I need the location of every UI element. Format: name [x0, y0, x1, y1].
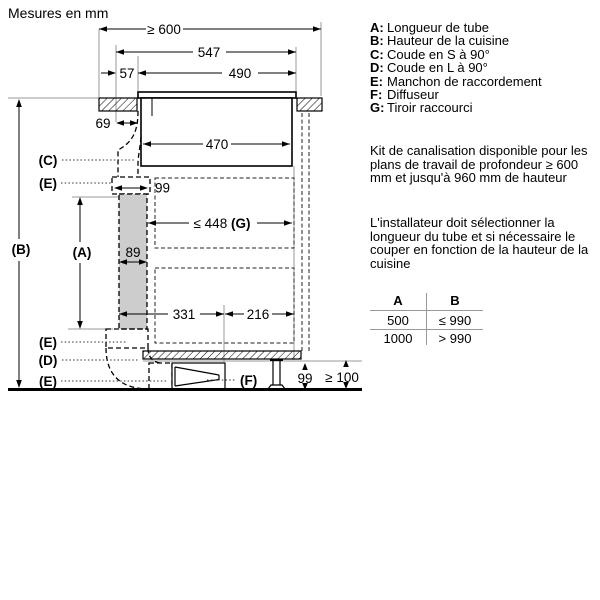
- label-kitchen-height: (B): [12, 242, 31, 257]
- plinth-foot: [268, 359, 285, 390]
- sleeve-bottom: [149, 363, 172, 389]
- legend-key: E:: [370, 75, 387, 88]
- legend-text: Hauteur de la cuisine: [387, 34, 509, 47]
- sleeve-mid: [106, 329, 148, 348]
- tube-length-table: A B 500 ≤ 990 1000 > 990: [370, 292, 483, 346]
- dim-worktop-depth: ≥ 600: [147, 22, 181, 37]
- dim-hob-overall: 547: [198, 45, 221, 60]
- legend-item-g: G:Tiroir raccourci: [370, 101, 600, 114]
- sleeve-top: [112, 177, 150, 194]
- label-sleeve-bottom: (E): [39, 374, 57, 389]
- legend-item-c: C:Coude en S à 90°: [370, 48, 600, 61]
- dim-plinth-min: ≥ 100: [325, 370, 359, 385]
- table-cell: 500: [370, 313, 426, 328]
- legend: A:Longueur de tube B:Hauteur de la cuisi…: [370, 21, 600, 115]
- legend-key: D:: [370, 61, 387, 74]
- label-sleeve-mid: (E): [39, 335, 57, 350]
- legend-key: F:: [370, 88, 387, 101]
- dim-plinth-height: 99: [297, 371, 312, 386]
- legend-text: Coude en L à 90°: [387, 61, 488, 74]
- drawer-outline: [155, 178, 294, 248]
- table-rule: [370, 310, 483, 311]
- drawer-ref: (G): [231, 216, 251, 231]
- note-installer: L'installateur doit sélectionner la long…: [370, 216, 600, 270]
- legend-text: Tiroir raccourci: [387, 101, 472, 114]
- worktop-section-left: [99, 98, 137, 111]
- legend-item-f: F:Diffuseur: [370, 88, 600, 101]
- legend-text: Diffuseur: [387, 88, 439, 101]
- table-header-b: B: [427, 293, 483, 308]
- dim-cutout: 490: [229, 66, 252, 81]
- hob-body: [141, 98, 292, 166]
- dim-span-right: 216: [247, 307, 270, 322]
- legend-item-d: D:Coude en L à 90°: [370, 61, 600, 74]
- dim-drawer-length: ≤ 448 (G): [194, 216, 251, 231]
- dim-rear-clearance: 69: [95, 116, 110, 131]
- label-s-bend: (C): [39, 153, 58, 168]
- dim-body-width: 470: [206, 137, 229, 152]
- cabinet-bottom-panel: [143, 351, 301, 359]
- legend-key: A:: [370, 21, 387, 34]
- diffuser: [172, 363, 225, 390]
- worktop-section-right: [297, 98, 322, 111]
- legend-key: B:: [370, 34, 387, 47]
- label-sleeve-top: (E): [39, 176, 57, 191]
- hob-top-plate: [138, 92, 296, 98]
- measurement-diagram-page: Mesures en mm: [0, 0, 600, 600]
- note-duct-kit: Kit de canalisation disponible pour les …: [370, 144, 600, 185]
- dimension-lines: [19, 29, 321, 380]
- legend-item-e: E:Manchon de raccordement: [370, 75, 600, 88]
- table-header-a: A: [370, 293, 426, 308]
- legend-key: G:: [370, 101, 387, 114]
- label-tube: (A): [73, 245, 92, 260]
- table-cell: ≤ 990: [427, 313, 483, 328]
- arrowheads: [16, 26, 349, 390]
- legend-text: Manchon de raccordement: [387, 75, 542, 88]
- dim-sleeve-width: 99: [155, 181, 170, 196]
- legend-item-a: A:Longueur de tube: [370, 21, 600, 34]
- drawer-length-value: ≤ 448: [194, 216, 228, 231]
- legend-text: Longueur de tube: [387, 21, 489, 34]
- legend-item-b: B:Hauteur de la cuisine: [370, 34, 600, 47]
- table-rule: [370, 329, 483, 330]
- s-bend-outer: [118, 111, 138, 177]
- table-cell: > 990: [427, 331, 483, 346]
- legend-key: C:: [370, 48, 387, 61]
- dim-front-gap: 57: [119, 66, 134, 81]
- label-diffuser: (F): [240, 373, 257, 388]
- table-cell: 1000: [370, 331, 426, 346]
- dim-span-left: 331: [173, 307, 196, 322]
- dim-tube-width: 89: [125, 245, 140, 260]
- label-l-bend: (D): [39, 353, 58, 368]
- legend-text: Coude en S à 90°: [387, 48, 490, 61]
